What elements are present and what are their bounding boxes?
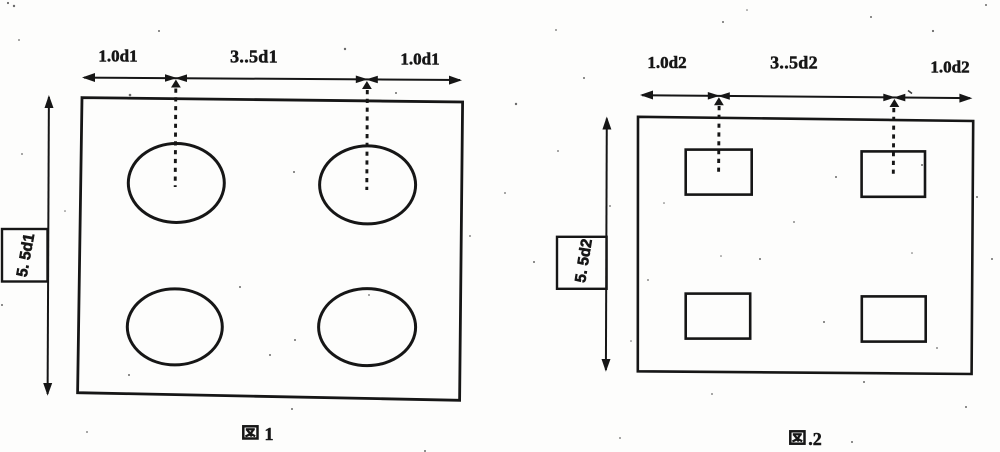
svg-text:1.0d2: 1.0d2 — [647, 53, 686, 72]
svg-text:3..5d2: 3..5d2 — [770, 53, 818, 73]
svg-text:3..5d1: 3..5d1 — [230, 47, 278, 67]
svg-text:5. 5d1: 5. 5d1 — [14, 232, 38, 279]
svg-text:1: 1 — [265, 424, 274, 444]
svg-text:1.0d1: 1.0d1 — [98, 47, 137, 66]
svg-text:1.0d2: 1.0d2 — [930, 58, 969, 77]
svg-text:1.0d1: 1.0d1 — [400, 50, 439, 69]
svg-text:.2: .2 — [808, 429, 822, 449]
svg-text:5. 5d2: 5. 5d2 — [572, 238, 596, 284]
